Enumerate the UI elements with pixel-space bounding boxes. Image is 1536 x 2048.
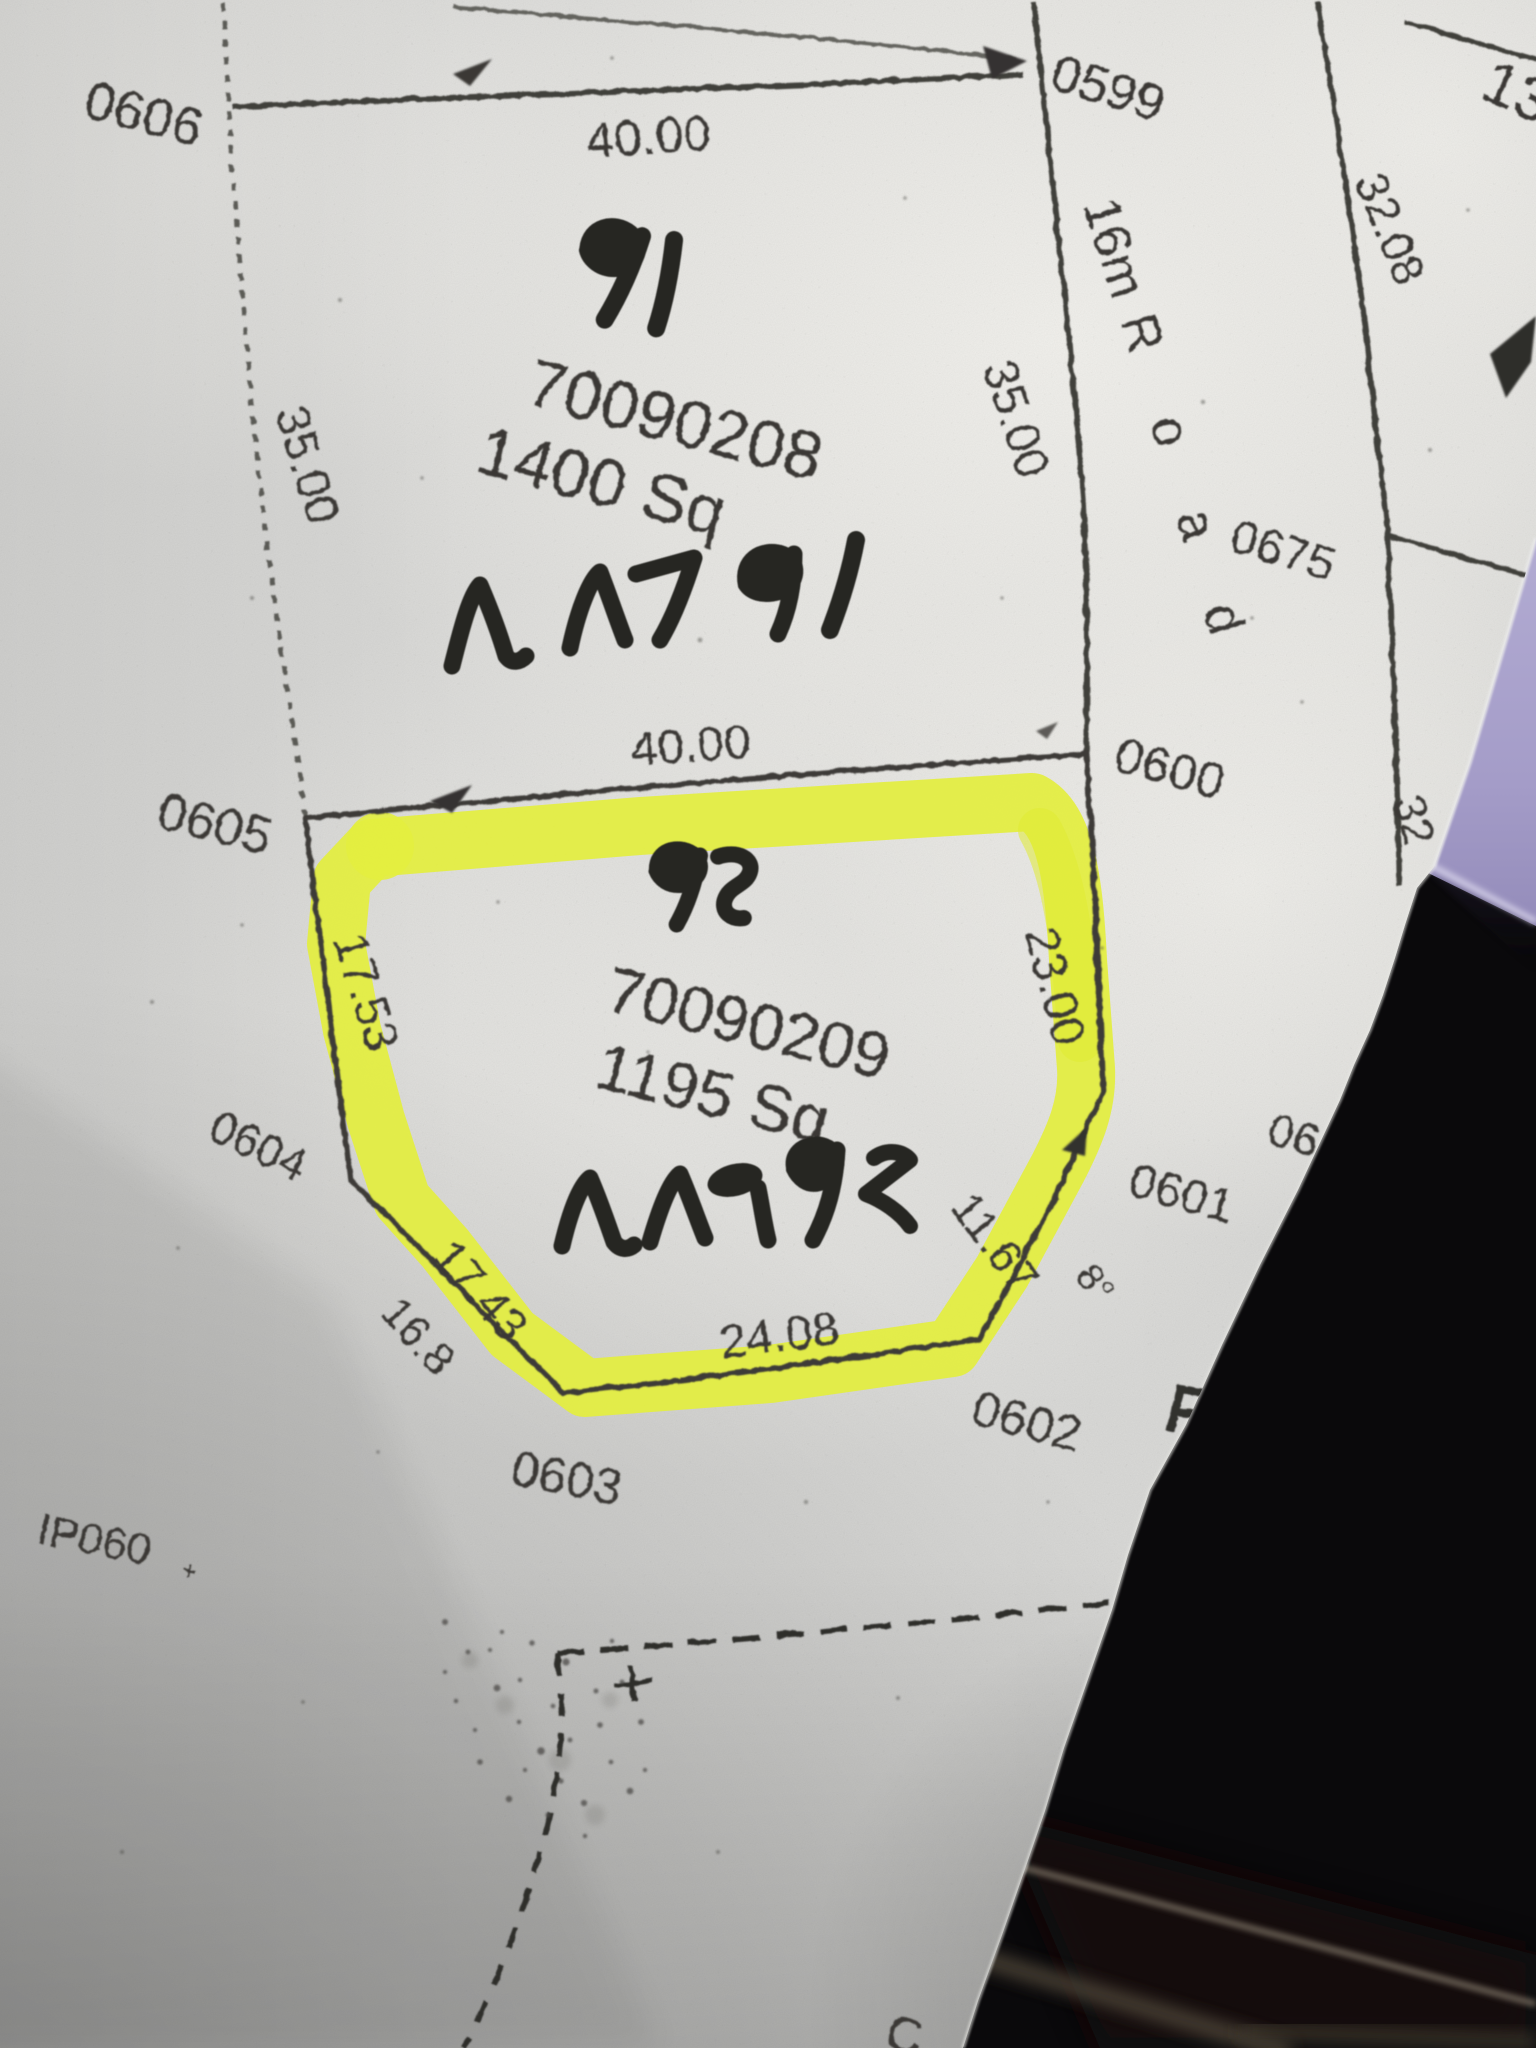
svg-text:40.00: 40.00 bbox=[583, 104, 712, 169]
svg-text:40.00: 40.00 bbox=[628, 715, 752, 776]
